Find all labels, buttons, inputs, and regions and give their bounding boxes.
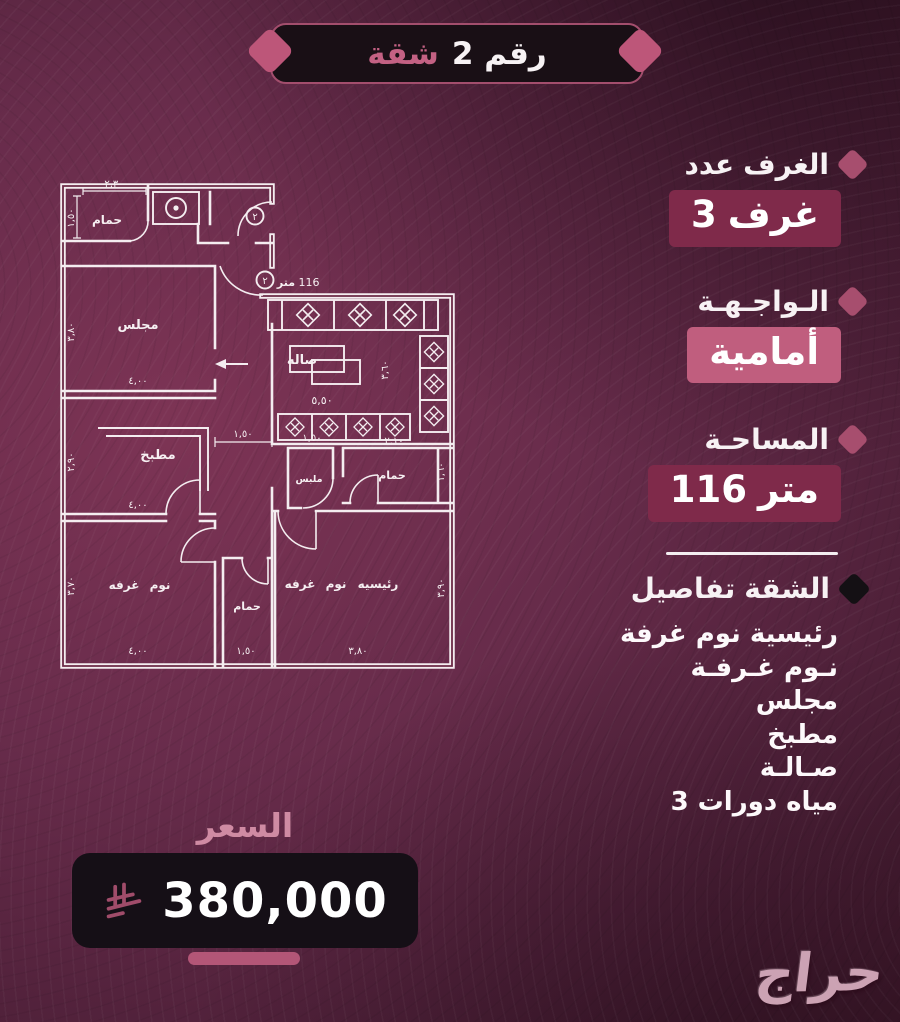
details-title-row: تفاصيلالشقة [631, 572, 866, 605]
plan-dimension-label: ٥,٥٠ [311, 394, 332, 407]
plan-dimension-label: ٣,٨٠ [348, 646, 367, 657]
plan-dimension-label: ٢ [262, 276, 267, 287]
area-value: 116متر [670, 470, 819, 511]
diamond-icon [836, 148, 869, 181]
word: 3 [691, 195, 717, 236]
plan-dimension-label: ١,٦٠ [436, 462, 447, 481]
word: دورات [698, 786, 778, 820]
word: 116 [670, 470, 747, 511]
plan-dimension-label: ٢,٩٠ [66, 452, 77, 471]
diamond-icon [837, 572, 871, 606]
plan-dimension-label: ١,٥٠ [233, 429, 252, 440]
plan-dimension-label: 116 [299, 276, 320, 289]
rooms-count-value: 3غرف [691, 195, 819, 236]
plan-room-label: غرفه [109, 578, 140, 592]
area-label: المساحـة [704, 423, 829, 456]
plan-dimension-label: ١,٥٠ [66, 208, 77, 227]
plan-dimension-label: ١,٥٠ [236, 646, 255, 657]
word: الغرف [743, 148, 829, 181]
apartment-number: رقم 2 [452, 36, 547, 72]
price-amount: 380,000 [162, 873, 388, 929]
plan-dimension-label: ٢,١٠ [384, 436, 403, 447]
word: عدد [684, 148, 734, 181]
word: مياه [786, 786, 838, 820]
word: أمامية [709, 332, 819, 373]
word: 3 [671, 786, 689, 820]
word: غرفة [620, 618, 687, 652]
plan-room-label: ملبس [295, 474, 322, 485]
plan-room-label: رئيسيه [358, 577, 399, 591]
rooms-count-value-badge: 3غرف [669, 190, 841, 247]
plan-room-label: مطبخ [140, 448, 175, 463]
floorplan: حماممجلسصالهمطبخغرفهنومحمامغرفهنومرئيسيه… [50, 176, 460, 676]
facade-value-badge: أمامية [687, 327, 841, 384]
plan-dimension-label: ٣,٨٠ [66, 322, 77, 341]
plan-dimension-label: ٤,٠٠ [128, 646, 147, 657]
plan-room-label: غرفه [285, 577, 316, 591]
facade-label: الـواجـهـة [697, 285, 829, 318]
floorplan-drawing: حماممجلسصالهمطبخغرفهنومحمامغرفهنومرئيسيه… [50, 176, 460, 676]
word: مجلس [756, 685, 838, 719]
plan-text-layer: حماممجلسصالهمطبخغرفهنومحمامغرفهنومرئيسيه… [66, 179, 447, 657]
plan-room-label: حمام [92, 213, 122, 228]
area-value-badge: 116متر [648, 465, 841, 522]
word: صـالـة [760, 752, 838, 786]
word: نـوم [784, 652, 838, 686]
plan-dimension-label: ٢ [252, 212, 257, 223]
plan-dimension-label: ١,٥٠ [302, 433, 321, 444]
apartment-title-badge: شقة رقم 2 [270, 23, 644, 84]
rooms-count-label-row: عددالغرف [684, 148, 864, 181]
specs-column: عددالغرف 3غرف الـواجـهـة أمامية المساحـة… [544, 148, 864, 819]
detail-item: 3دوراتمياه [671, 786, 838, 820]
facade-label-row: الـواجـهـة [697, 285, 864, 318]
word: متر [758, 470, 819, 511]
diamond-icon [836, 285, 869, 318]
details-title: تفاصيلالشقة [631, 572, 830, 605]
word: رئيسية [750, 618, 838, 652]
plan-dimension-label: ٤,٠٠ [128, 376, 147, 387]
word: الشقة [744, 572, 830, 605]
detail-item: صـالـة [760, 752, 838, 786]
area-label-row: المساحـة [704, 423, 864, 456]
price-label: السعر [72, 806, 418, 845]
plan-room-label: صاله [287, 353, 317, 368]
plan-room-label: نوم [326, 577, 347, 592]
plan-room-label: متر [276, 276, 295, 289]
word: غـرفـة [690, 652, 775, 686]
hall-sofas [268, 300, 448, 440]
detail-item: غـرفـةنـوم [690, 652, 838, 686]
plan-room-label: حمام [233, 600, 261, 613]
rooms-count-label: عددالغرف [684, 148, 829, 181]
plan-room-label: مجلس [117, 318, 158, 333]
washing-machine-icon [153, 192, 199, 224]
facade-value: أمامية [709, 332, 819, 373]
plan-dimension-label: ٢,٣٠ [104, 179, 123, 190]
detail-item: مجلس [756, 685, 838, 719]
haraj-watermark-logo: حراج [753, 942, 888, 1005]
word: الـواجـهـة [697, 285, 829, 318]
word: مطبخ [767, 719, 838, 753]
detail-item: غرفةنومرئيسية [620, 618, 838, 652]
word: غرف [728, 195, 819, 236]
plan-dimension-label: ٣,٩٠ [436, 578, 447, 597]
word: نوم [696, 618, 741, 652]
word: المساحـة [704, 423, 829, 456]
saudi-riyal-icon [102, 879, 146, 923]
door-arcs [130, 202, 378, 584]
apartment-word: شقة [367, 36, 439, 72]
entry-arrow-icon [215, 359, 248, 369]
plan-room-label: نوم [150, 578, 171, 593]
plan-room-label: حمام [378, 469, 406, 482]
details-list: غرفةنومرئيسيةغـرفـةنـوممجلسمطبخصـالـة3دو… [620, 618, 838, 819]
section-divider [666, 552, 838, 555]
detail-item: مطبخ [767, 719, 838, 753]
price-underbar [188, 952, 300, 965]
diamond-icon [836, 424, 869, 457]
plan-dimension-label: ٣,٦٠ [380, 360, 391, 379]
plan-dimension-label: ٤,٠٠ [128, 500, 147, 511]
price-box: 380,000 [72, 853, 418, 948]
word: تفاصيل [631, 572, 736, 605]
plan-dimension-label: ٣,٧٠ [66, 576, 77, 595]
